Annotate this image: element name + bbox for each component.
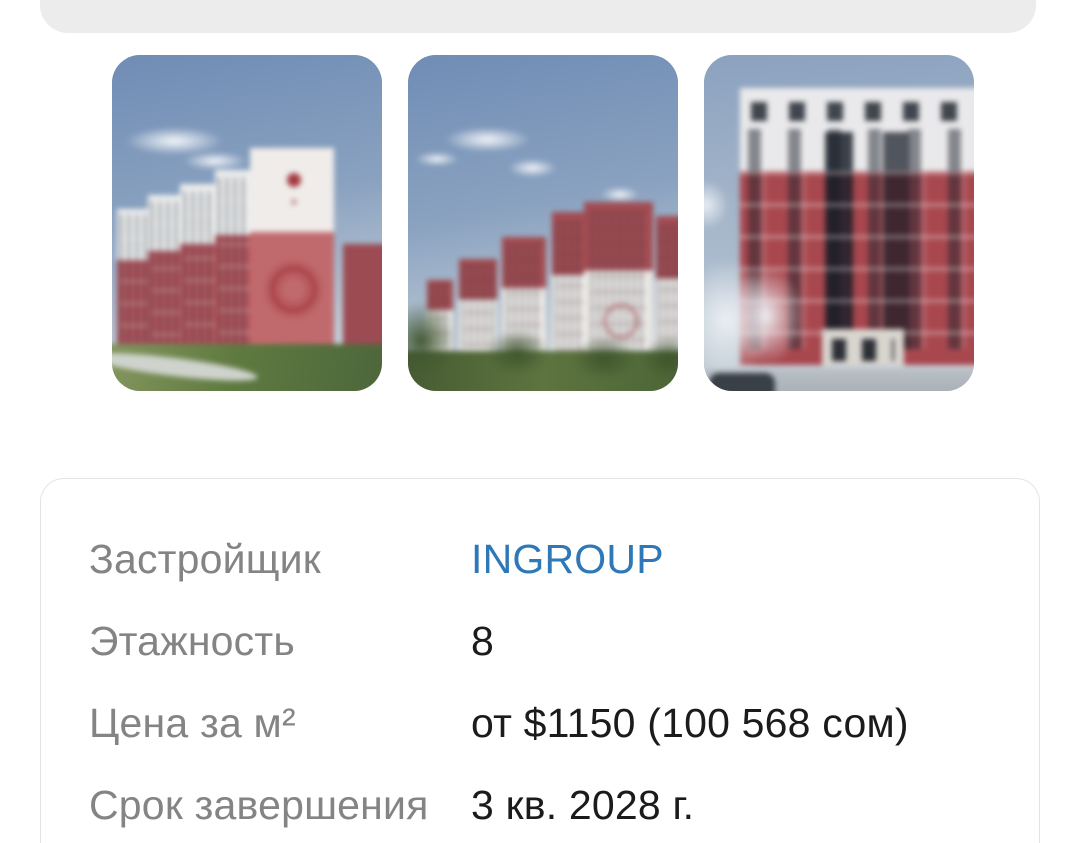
cloud <box>415 152 459 166</box>
snowy-tree <box>704 180 729 230</box>
photo-gallery <box>112 55 974 391</box>
gallery-photo-1[interactable] <box>112 55 382 391</box>
bush <box>485 330 549 376</box>
developer-link[interactable]: INGROUP <box>471 532 664 586</box>
building-render-frontal <box>704 55 974 391</box>
snowy-tree <box>729 266 804 366</box>
cloud <box>508 159 557 177</box>
bush <box>408 301 456 379</box>
price-per-m2-value: от $1150 (100 568 сом) <box>471 696 909 750</box>
completion-label: Срок завершения <box>89 778 471 832</box>
building-render-distant <box>408 55 678 391</box>
price-per-m2-label: Цена за м² <box>89 696 471 750</box>
floors-value: 8 <box>471 614 494 668</box>
cloud <box>183 152 247 170</box>
side-building <box>343 244 382 354</box>
details-row-developer: Застройщик INGROUP <box>89 532 1009 586</box>
details-row-floors: Этажность 8 <box>89 614 1009 668</box>
details-row-completion: Срок завершения 3 кв. 2028 г. <box>89 778 1009 832</box>
previous-section-card[interactable] <box>40 0 1036 33</box>
details-row-price: Цена за м² от $1150 (100 568 сом) <box>89 696 1009 750</box>
car <box>709 373 776 391</box>
gallery-photo-2[interactable] <box>408 55 678 391</box>
floors-label: Этажность <box>89 614 471 668</box>
cloud <box>601 187 639 201</box>
ornament-end-wall <box>250 148 334 358</box>
bush <box>572 337 636 380</box>
gallery-photo-3[interactable] <box>704 55 974 391</box>
top-windows <box>751 102 974 121</box>
listing-details-card: Застройщик INGROUP Этажность 8 Цена за м… <box>40 478 1040 843</box>
building-render-angled <box>112 55 382 391</box>
entrance <box>822 329 904 365</box>
cloud <box>444 127 531 152</box>
developer-label: Застройщик <box>89 532 471 586</box>
completion-value: 3 кв. 2028 г. <box>471 778 694 832</box>
bush <box>642 337 678 380</box>
